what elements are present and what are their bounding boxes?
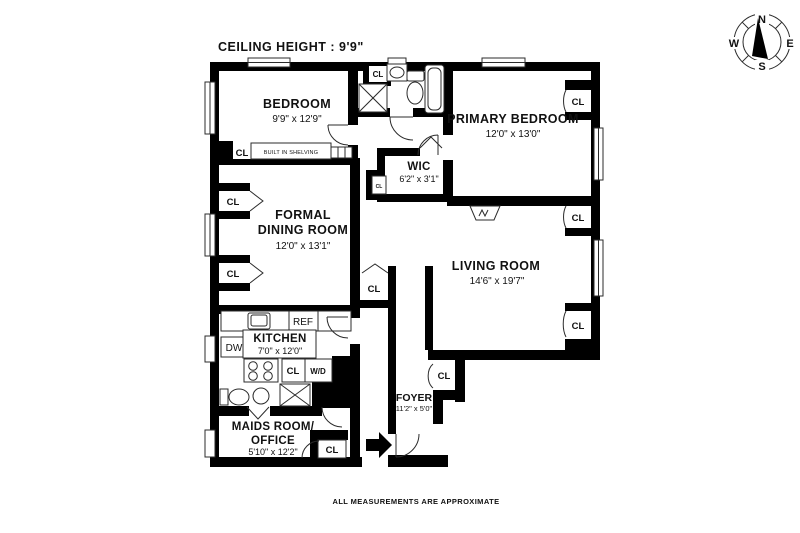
door-triangle-icon <box>362 264 388 273</box>
built-in-shelving-label: BUILT IN SHELVING <box>264 150 318 156</box>
window <box>205 430 215 457</box>
floor-plan-page: N E S W CEILING HEIGHT : 9'9" BEDROOM 9'… <box>0 0 800 533</box>
toilet-icon <box>220 389 228 405</box>
wall <box>350 158 360 318</box>
closet-label: CL <box>368 284 381 295</box>
wall <box>591 62 600 360</box>
bedroom-dims: 9'9" x 12'9" <box>272 114 322 125</box>
kitchen-label: KITCHEN <box>253 333 306 345</box>
foyer-dims: 11'2" x 5'0" <box>396 404 433 413</box>
dining-room-label-line2: DINING ROOM <box>258 223 349 237</box>
window <box>205 336 215 362</box>
living-room-label: LIVING ROOM <box>452 259 540 273</box>
wall <box>447 196 600 206</box>
wall <box>310 430 318 458</box>
closet-label: CL <box>572 97 585 108</box>
wall <box>312 382 350 408</box>
compass-spoke <box>775 55 781 61</box>
door-swing-icon <box>418 135 438 155</box>
door-swing-icon <box>396 434 419 457</box>
wic-label: WIC <box>407 161 430 173</box>
wall <box>565 228 600 236</box>
compass-rose: N E S W <box>727 12 797 73</box>
toilet-icon <box>229 389 249 405</box>
wall <box>377 194 453 202</box>
closet-label: CL <box>572 321 585 332</box>
door-triangle-icon <box>250 263 263 283</box>
door-triangle-icon <box>420 137 442 148</box>
dining-room-dims: 12'0" x 13'1" <box>276 241 331 252</box>
door-triangle-icon <box>247 407 269 419</box>
wall <box>565 339 600 350</box>
bathtub-icon <box>428 68 441 110</box>
compass-west-label: W <box>729 38 740 50</box>
washer-dryer-label: W/D <box>310 367 326 376</box>
dishwasher-label: DW <box>226 343 243 354</box>
kitchen-counter <box>221 311 351 331</box>
closet-label: CL <box>326 445 339 456</box>
sink-icon <box>253 388 269 404</box>
entry-arrow-icon <box>366 432 392 458</box>
disclaimer-label: ALL MEASUREMENTS ARE APPROXIMATE <box>333 497 500 506</box>
wall <box>565 303 600 311</box>
wall <box>332 356 350 384</box>
door-swing-icon <box>328 125 348 145</box>
compass-east-label: E <box>786 38 793 50</box>
closet-label: CL <box>227 197 240 208</box>
compass-south-label: S <box>758 61 765 73</box>
closet-label: CL <box>373 70 384 79</box>
maids-room-dims: 5'10" x 12'2" <box>248 447 297 457</box>
wall <box>219 283 250 291</box>
wall <box>428 350 600 360</box>
wall <box>350 344 360 457</box>
wic-dims: 6'2" x 3'1" <box>399 174 438 184</box>
wall <box>388 350 396 434</box>
door-swing-icon <box>322 407 342 427</box>
primary-bedroom-dims: 12'0" x 13'0" <box>486 129 541 140</box>
wall <box>425 266 433 350</box>
wall <box>350 300 396 308</box>
ceiling-height-label: CEILING HEIGHT : 9'9" <box>218 40 364 54</box>
door-swing-icon <box>563 311 566 337</box>
compass-spoke <box>742 55 748 61</box>
bedroom-label: BEDROOM <box>263 97 331 111</box>
wall <box>433 400 443 424</box>
wall <box>565 80 600 90</box>
maids-room-label-line2: OFFICE <box>251 435 295 447</box>
compass-north-label: N <box>758 14 766 26</box>
wall <box>219 406 249 416</box>
shelf-strip <box>331 147 352 158</box>
door-swing-icon <box>428 364 433 388</box>
closet-label: CL <box>287 366 300 377</box>
wall <box>433 390 465 400</box>
living-room-dims: 14'6" x 19'7" <box>470 276 525 287</box>
foyer-label: FOYER <box>396 392 433 404</box>
door-swing-icon <box>390 117 413 140</box>
maids-room-label-line1: MAIDS ROOM/ <box>232 421 315 433</box>
compass-spoke <box>742 22 748 28</box>
toilet-icon <box>407 82 423 104</box>
closet-label: CL <box>236 148 249 159</box>
toilet-icon <box>407 71 424 81</box>
closet-label: CL <box>376 184 383 190</box>
sink-icon <box>251 315 267 326</box>
wall <box>219 183 250 191</box>
closet-label: CL <box>572 213 585 224</box>
closet-label: CL <box>227 269 240 280</box>
wall <box>219 141 233 160</box>
fireplace-icon <box>470 206 500 220</box>
closet-label: CL <box>438 371 451 382</box>
door-triangle-icon <box>250 191 263 211</box>
primary-bedroom-label: PRIMARY BEDROOM <box>447 112 579 126</box>
dining-room-label-line1: FORMAL <box>275 208 331 222</box>
kitchen-dims: 7'0" x 12'0" <box>258 346 302 356</box>
wall <box>270 406 322 416</box>
wall <box>219 255 250 263</box>
door-swing-icon <box>564 206 566 228</box>
wall <box>219 211 250 219</box>
floor-plan-drawing: N E S W CEILING HEIGHT : 9'9" BEDROOM 9'… <box>0 0 800 533</box>
door-swing-icon <box>564 90 566 112</box>
refrigerator-label: REF <box>293 317 313 328</box>
compass-spoke <box>775 22 781 28</box>
